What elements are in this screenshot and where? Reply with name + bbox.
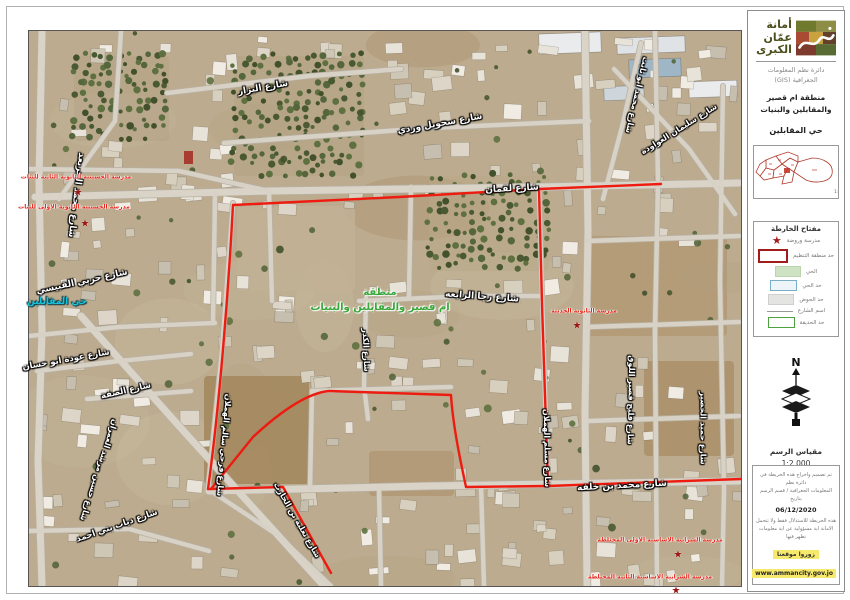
legend-item: حد الحي bbox=[756, 280, 836, 291]
municipality-title: أمانة عمّان الكبرى bbox=[756, 19, 792, 57]
legend-item-label: حد منطقة التنظيم bbox=[793, 253, 834, 259]
locator-minimap: 1:500,000 bbox=[753, 145, 839, 199]
legend-symbol-rect-red bbox=[758, 249, 788, 263]
municipality-logo-block: أمانة عمّان الكبرى bbox=[752, 19, 840, 57]
map-canvas bbox=[28, 30, 742, 587]
visit-us-label: زوروا موقعنا bbox=[773, 550, 819, 559]
minimap-scale-text: 1:500,000 bbox=[834, 189, 838, 194]
footer-notes: تم تصميم واخراج هذه الخريطة في دائرة نظم… bbox=[752, 465, 840, 585]
legend-symbol-rect-green-fill bbox=[775, 266, 801, 277]
legend-item: حد الحوض bbox=[756, 294, 836, 305]
zone-title: منطقة ام قصير والمقابلين والبنيات bbox=[748, 92, 844, 116]
legend-symbol-line bbox=[767, 311, 793, 312]
legend-item: ★مدرسة وروضة bbox=[756, 236, 836, 246]
legend-item: الحي bbox=[756, 266, 836, 277]
credit-note: تم تصميم واخراج هذه الخريطة في دائرة نظم… bbox=[756, 471, 836, 503]
locator-minimap-graphic: 1:500,000 bbox=[754, 146, 838, 196]
district-title: حي المقابلين bbox=[748, 126, 844, 135]
legend-item-label: حد الحوض bbox=[799, 297, 823, 303]
disclaimer-note: هذه الخريطة للاستدلال فقط ولا تتحمل الام… bbox=[756, 517, 836, 541]
scale-label: مقياس الرسم bbox=[748, 447, 844, 456]
legend-item: حد منطقة التنظيم bbox=[756, 249, 836, 263]
legend: مفتاح الخارطة ★مدرسة وروضةحد منطقة التنظ… bbox=[753, 221, 839, 337]
svg-text:N: N bbox=[791, 356, 800, 369]
legend-item: حد الحديقة bbox=[756, 317, 836, 328]
legend-symbol-rect-green bbox=[768, 317, 795, 328]
legend-item-label: الحي bbox=[806, 269, 817, 275]
north-arrow: N bbox=[748, 355, 844, 433]
map-sheet: منطقة ام قصير والمقابلين والبنيات حي الم… bbox=[0, 0, 850, 600]
legend-title: مفتاح الخارطة bbox=[756, 225, 836, 233]
legend-symbol-rect-blue bbox=[770, 280, 797, 291]
legend-item-label: حد الحي bbox=[802, 283, 821, 289]
legend-item: اسم الشارع bbox=[756, 308, 836, 314]
legend-item-label: اسم الشارع bbox=[798, 308, 825, 314]
north-arrow-icon: N bbox=[776, 355, 816, 429]
amman-municipality-logo-icon bbox=[796, 20, 836, 56]
legend-item-label: حد الحديقة bbox=[800, 320, 825, 326]
print-date: 06/12/2020 bbox=[756, 506, 836, 514]
satellite-imagery bbox=[29, 31, 741, 586]
legend-symbol-rect-gray-fill bbox=[768, 294, 794, 305]
gis-department-label: دائرة نظم المعلومات الجغرافية (GIS) bbox=[748, 66, 844, 86]
sidebar: أمانة عمّان الكبرى دائرة نظم المعلومات ا… bbox=[747, 10, 845, 592]
legend-item-label: مدرسة وروضة bbox=[787, 238, 820, 244]
legend-symbol-star: ★ bbox=[772, 236, 782, 246]
website-url: www.ammancity.gov.jo bbox=[752, 569, 836, 578]
divider bbox=[756, 61, 836, 62]
